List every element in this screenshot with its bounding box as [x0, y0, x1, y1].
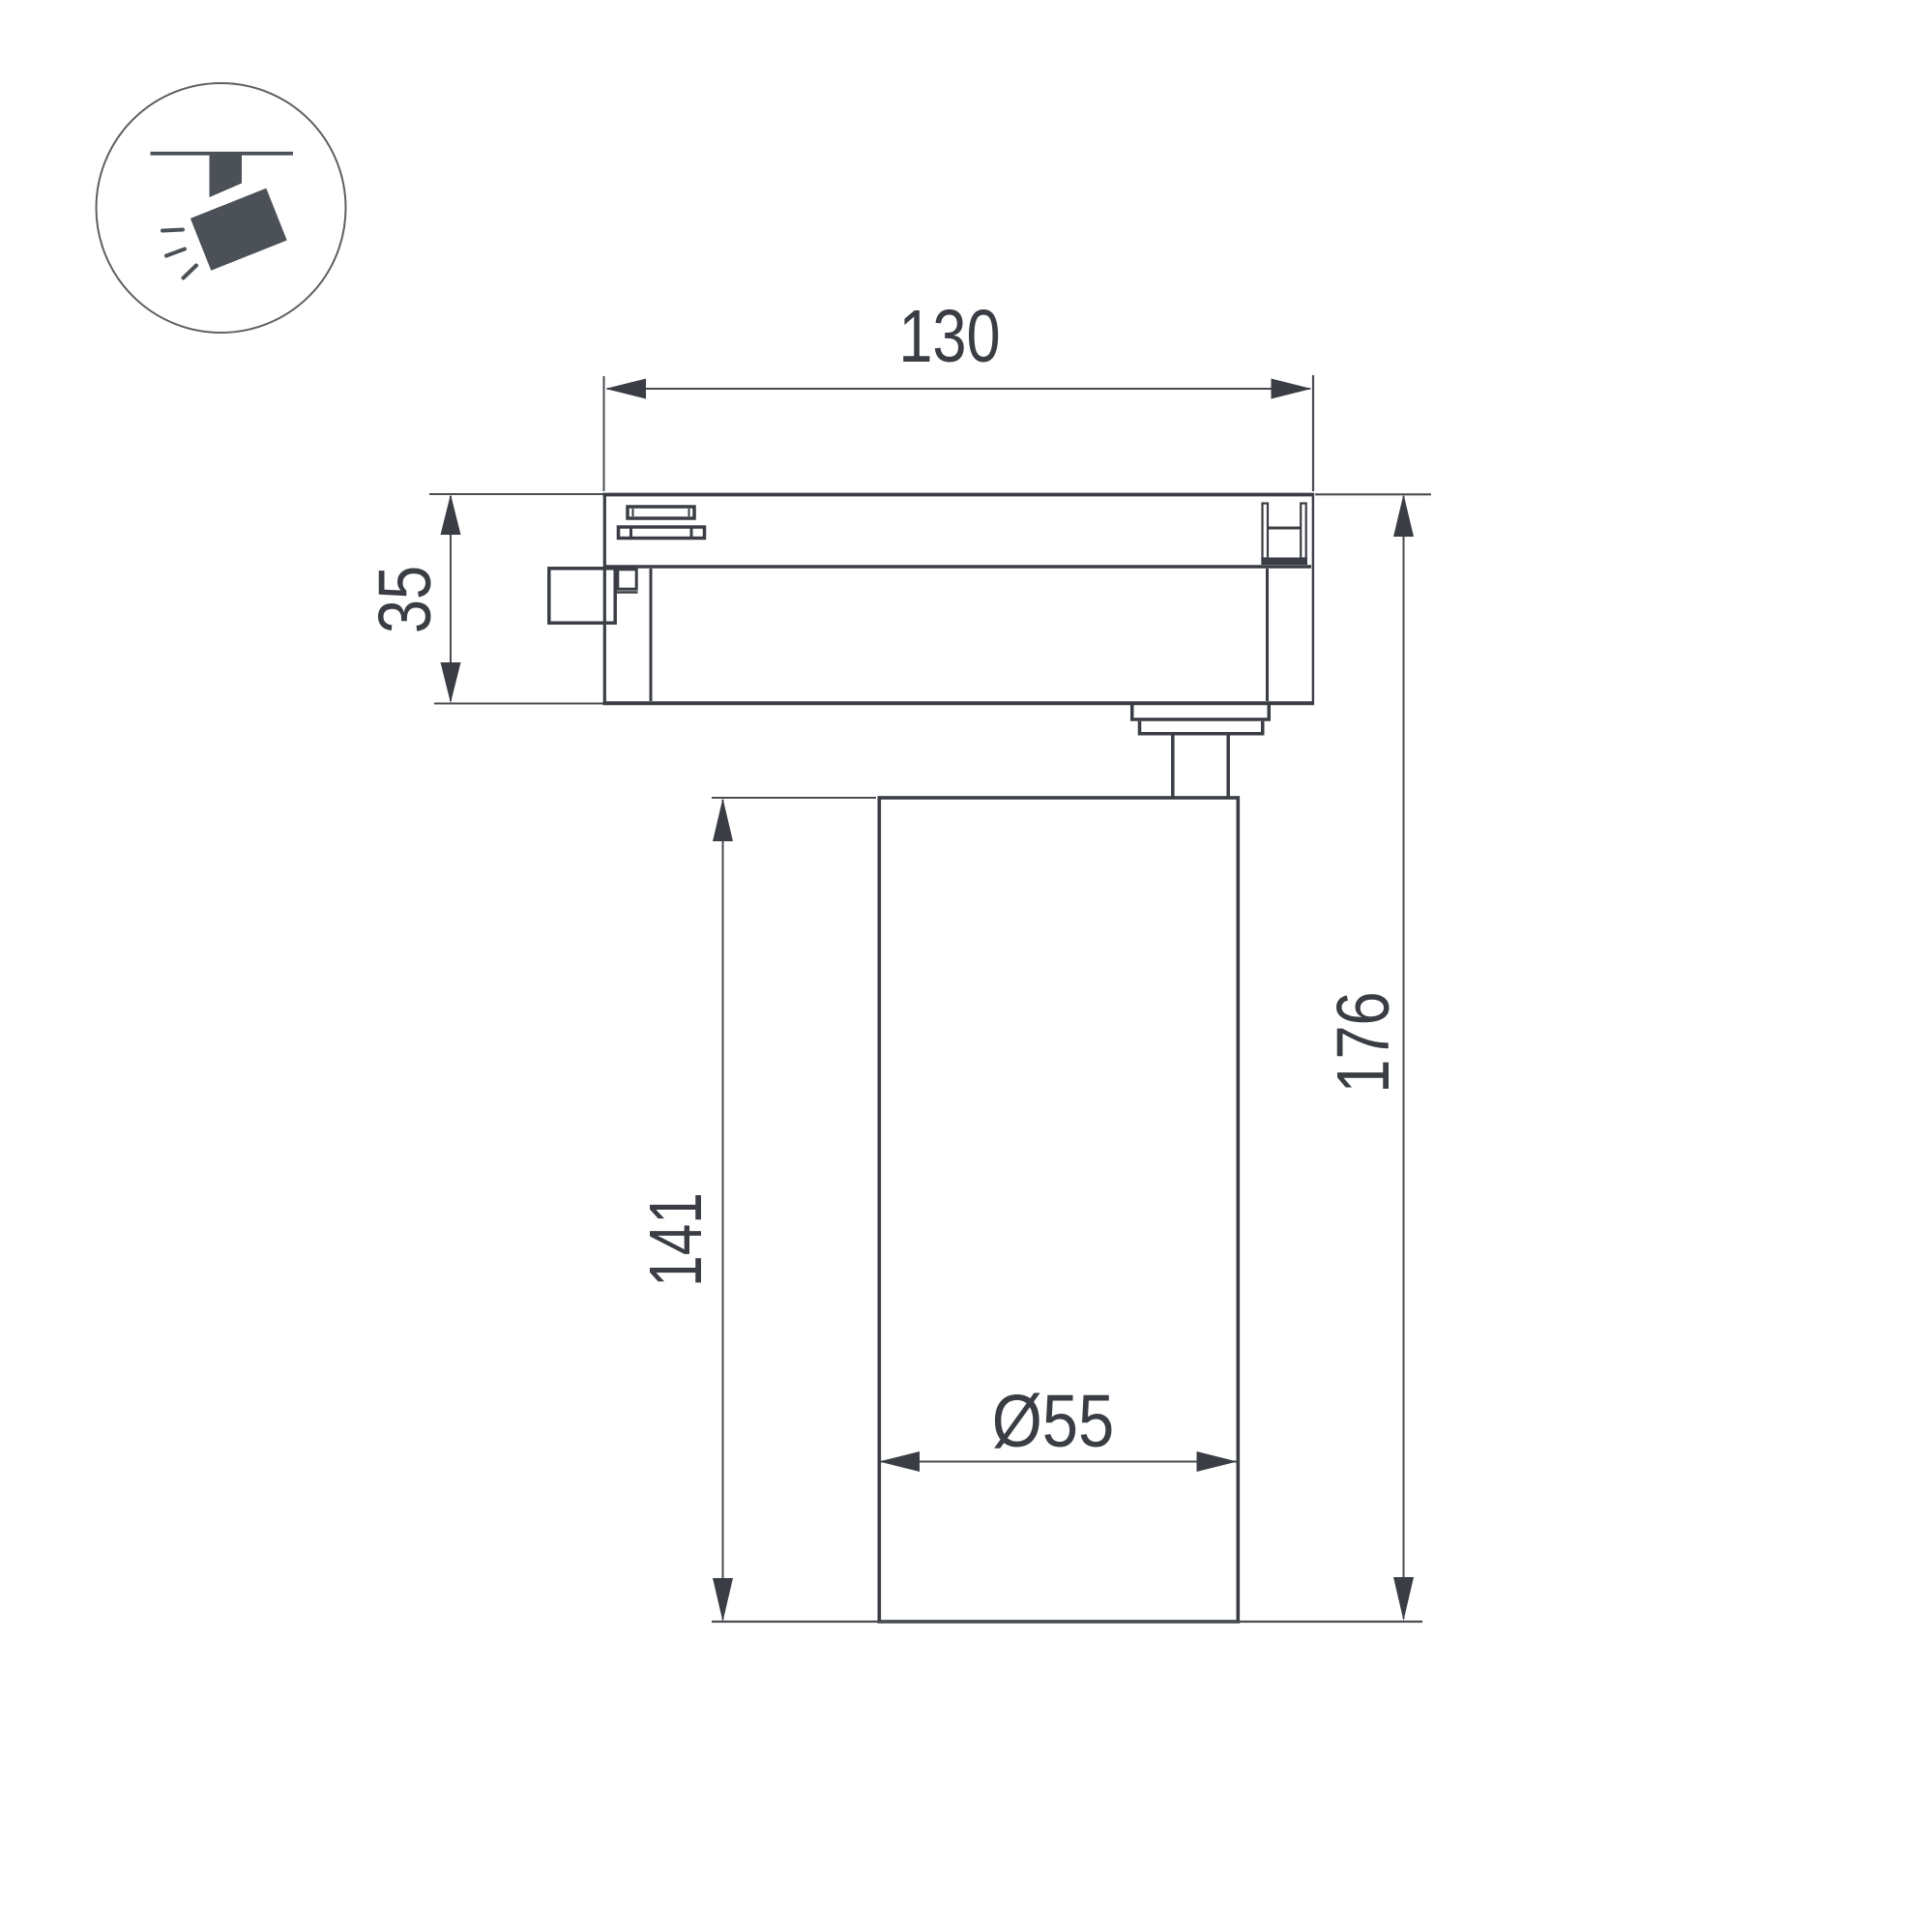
svg-text:130: 130	[898, 294, 1000, 377]
svg-text:141: 141	[634, 1192, 717, 1287]
svg-text:35: 35	[363, 566, 446, 633]
svg-text:Ø55: Ø55	[992, 1381, 1115, 1463]
svg-text:176: 176	[1321, 991, 1404, 1093]
